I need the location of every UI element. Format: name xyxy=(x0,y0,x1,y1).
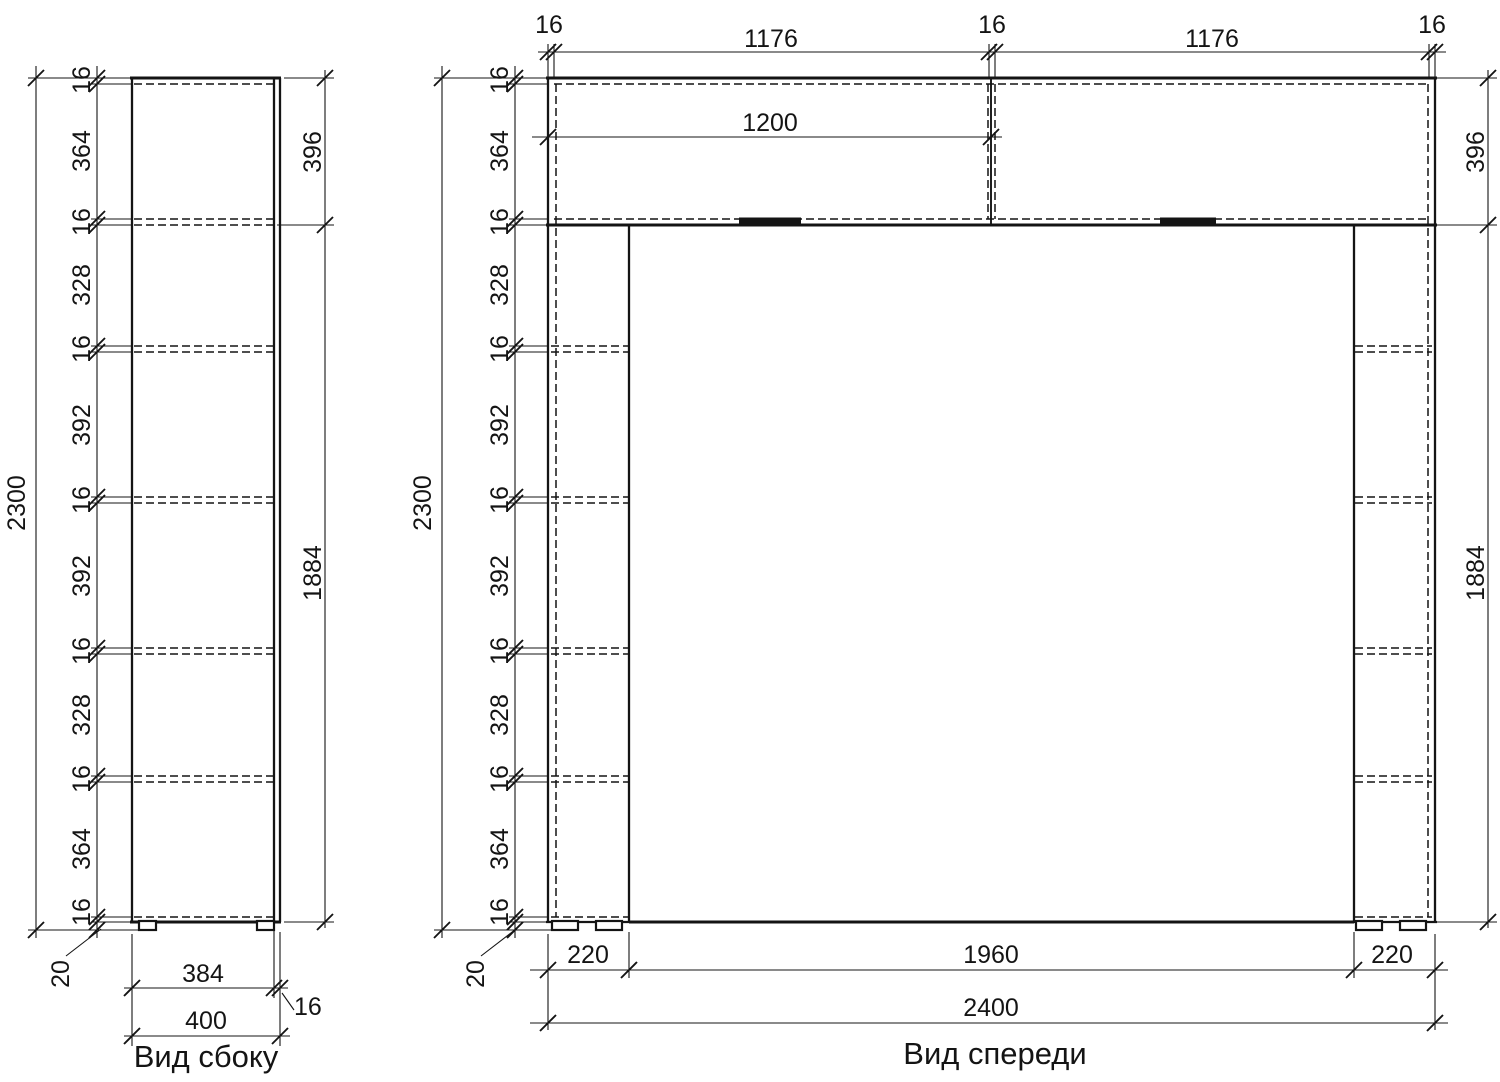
sv-foot-left xyxy=(139,921,156,930)
fv-foot xyxy=(552,921,578,930)
front-view: 16 1176 16 1176 16 1200 2300 xyxy=(409,11,1497,1071)
fv-top-chain-label: 1176 xyxy=(1185,25,1239,53)
sv-dim-body-depth: 384 xyxy=(182,960,224,988)
side-view-hidden-edges xyxy=(134,84,273,917)
fv-dim-overall-width: 2400 xyxy=(963,994,1019,1022)
leader-line xyxy=(481,929,516,956)
fv-chain-label: 16 xyxy=(486,765,514,793)
leader-line xyxy=(66,929,101,956)
sv-dim-total-depth: 400 xyxy=(185,1007,227,1035)
leader-line xyxy=(282,993,294,1010)
sv-chain-label: 364 xyxy=(68,828,96,870)
fv-top-chain-label: 16 xyxy=(1418,11,1446,39)
sv-chain-label: 392 xyxy=(68,555,96,597)
side-view-title: Вид сбоку xyxy=(134,1039,279,1074)
fv-chain-label: 364 xyxy=(486,828,514,870)
sv-chain-label: 16 xyxy=(68,335,96,363)
fv-chain-label: 16 xyxy=(486,66,514,94)
fv-dim-plinth: 20 xyxy=(462,960,490,988)
front-view-title: Вид спереди xyxy=(903,1036,1086,1071)
fv-chain-label: 16 xyxy=(486,898,514,926)
sv-foot-right xyxy=(257,921,274,930)
fv-chain-label: 328 xyxy=(486,694,514,736)
fv-chain-label: 16 xyxy=(486,486,514,514)
sv-dim-plinth: 20 xyxy=(47,960,75,988)
sv-dim-overall-height: 2300 xyxy=(3,475,31,531)
fv-foot xyxy=(1356,921,1382,930)
side-view-dimensions: 2300 xyxy=(3,66,334,1046)
sv-chain-label: 16 xyxy=(68,898,96,926)
side-view-cabinet-outline xyxy=(130,78,281,930)
fv-dim-lower-height: 1884 xyxy=(1462,545,1490,601)
fv-dim-overall-height: 2300 xyxy=(409,475,437,531)
sv-chain-label: 328 xyxy=(68,694,96,736)
sv-chain-label: 16 xyxy=(68,637,96,665)
fv-chain-label: 16 xyxy=(486,335,514,363)
blueprint-canvas: 2300 xyxy=(0,0,1500,1082)
sv-dim-lower-height: 1884 xyxy=(299,545,327,601)
fv-chain-label: 16 xyxy=(486,637,514,665)
fv-chain-label: 392 xyxy=(486,555,514,597)
fv-bottom-chain-label: 220 xyxy=(1371,941,1413,969)
fv-top-chain-label: 16 xyxy=(535,11,563,39)
sv-chain-label: 16 xyxy=(68,486,96,514)
fv-chain-label: 392 xyxy=(486,404,514,446)
front-view-cabinet-outline xyxy=(546,78,1437,930)
sv-dim-upper-height: 396 xyxy=(299,131,327,173)
side-view: 2300 xyxy=(3,66,334,1074)
sv-chain-label: 16 xyxy=(68,208,96,236)
fv-top-chain-label: 16 xyxy=(978,11,1006,39)
sv-chain-label: 328 xyxy=(68,264,96,306)
fv-chain-label: 328 xyxy=(486,264,514,306)
fv-dim-upper-height: 396 xyxy=(1462,131,1490,173)
sv-chain-label: 16 xyxy=(68,66,96,94)
fv-dim-upper-inner-width: 1200 xyxy=(742,109,798,137)
sv-dim-door-thickness: 16 xyxy=(294,993,322,1021)
sv-chain-label: 364 xyxy=(68,130,96,172)
sv-chain-label: 392 xyxy=(68,404,96,446)
fv-top-chain-label: 1176 xyxy=(744,25,798,53)
fv-bottom-chain-label: 1960 xyxy=(963,941,1019,969)
front-view-dimensions: 16 1176 16 1176 16 1200 2300 xyxy=(409,11,1497,1031)
fv-chain-label: 16 xyxy=(486,208,514,236)
fv-bottom-chain-label: 220 xyxy=(567,941,609,969)
sv-chain-label: 16 xyxy=(68,765,96,793)
fv-foot xyxy=(1400,921,1426,930)
fv-chain-label: 364 xyxy=(486,130,514,172)
drawing-page: 2300 xyxy=(0,0,1500,1082)
fv-foot xyxy=(596,921,622,930)
